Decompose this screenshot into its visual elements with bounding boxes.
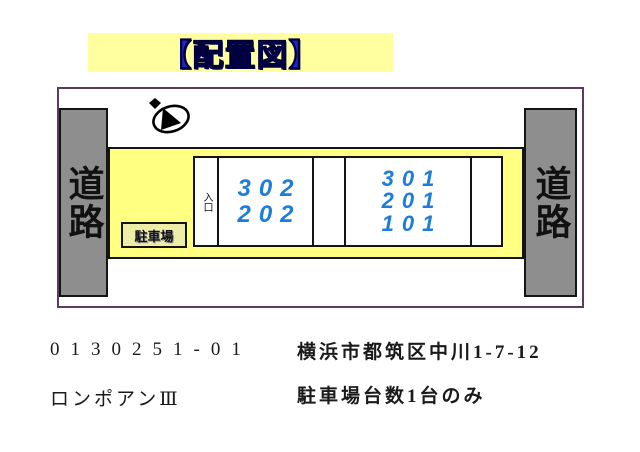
site-layout-page: 【配置図】 道路 道路 入口 302 202 301 201 101: [0, 0, 640, 452]
parking-capacity-note: 駐車場台数1台のみ: [297, 381, 486, 408]
unit-number: 202: [229, 202, 301, 228]
road-right-label: 道路: [533, 165, 569, 241]
road-left-label: 道路: [66, 165, 102, 241]
parking-label: 駐車場: [134, 226, 173, 245]
unit-number: 302: [229, 176, 301, 202]
road-left: 道路: [59, 108, 108, 297]
page-title: 【配置図】: [161, 30, 321, 75]
building-end-section: [472, 158, 501, 245]
entrance-section: 入口: [195, 158, 219, 245]
north-arrow-icon: [146, 97, 196, 141]
unit-number: 301: [374, 168, 443, 190]
building-middle-section: [314, 158, 346, 245]
property-address: 横浜市都筑区中川1-7-12: [297, 337, 542, 364]
building-name: ロンポアンⅢ: [50, 384, 181, 411]
unit-number: 201: [374, 190, 443, 212]
building-outline: 入口 302 202 301 201 101: [193, 156, 503, 247]
road-right: 道路: [524, 108, 577, 297]
title-banner: 【配置図】: [88, 33, 393, 72]
parking-label-box: 駐車場: [121, 222, 187, 248]
property-code: 0130251-01: [50, 339, 252, 361]
unit-number: 101: [374, 213, 443, 235]
unit-room-301-201-101: 301 201 101: [346, 158, 472, 245]
entrance-label: 入口: [201, 192, 211, 212]
unit-room-302-202: 302 202: [219, 158, 314, 245]
